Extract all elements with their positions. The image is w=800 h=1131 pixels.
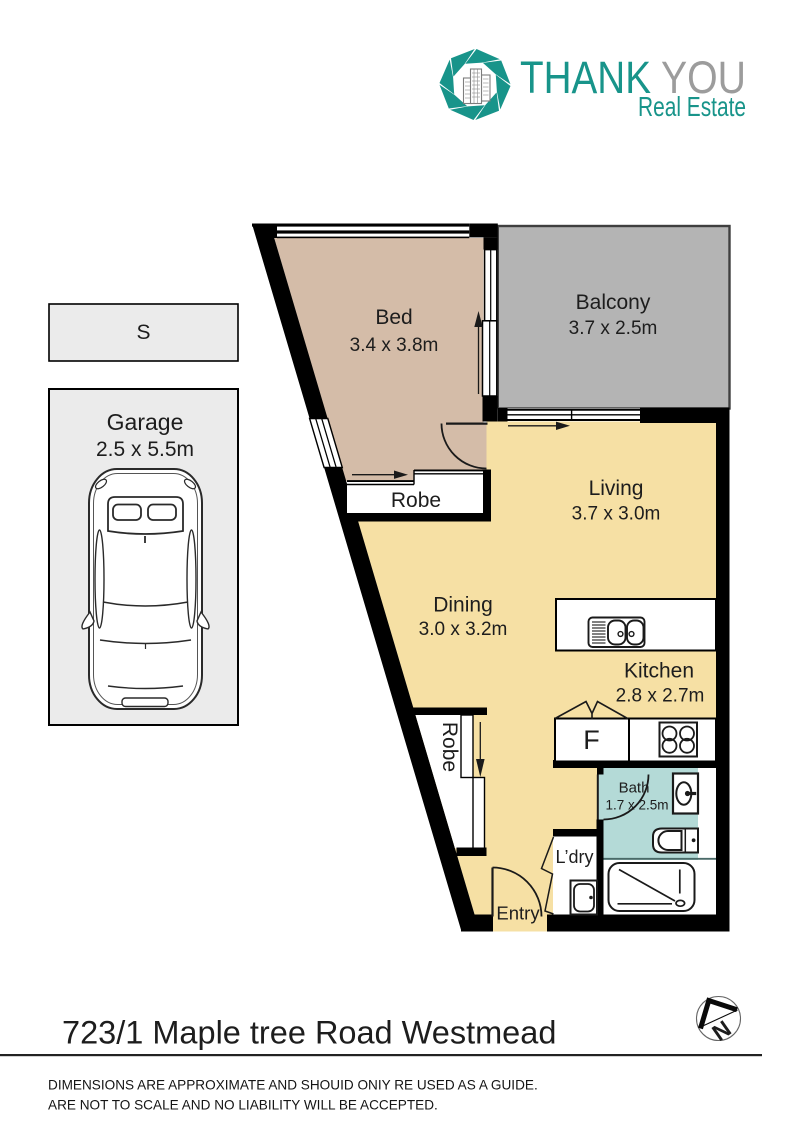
svg-text:Dining: Dining — [433, 594, 493, 617]
svg-text:Entry: Entry — [496, 903, 540, 924]
svg-text:3.0 x 3.2m: 3.0 x 3.2m — [419, 619, 508, 640]
svg-text:Robe: Robe — [438, 722, 461, 772]
svg-text:ARE NOT TO SCALE AND NO LIABIL: ARE NOT TO SCALE AND NO LIABILITY WILL B… — [48, 1098, 438, 1113]
svg-text:S: S — [136, 321, 150, 344]
svg-text:3.7 x 3.0m: 3.7 x 3.0m — [572, 504, 661, 525]
svg-text:Real Estate: Real Estate — [638, 91, 746, 122]
svg-text:723/1 Maple tree Road Westmead: 723/1 Maple tree Road Westmead — [62, 1015, 556, 1051]
svg-text:N: N — [707, 1015, 736, 1046]
svg-text:L’dry: L’dry — [555, 847, 593, 867]
svg-text:DIMENSIONS ARE APPROXIMATE AND: DIMENSIONS ARE APPROXIMATE AND SHOUID ON… — [48, 1078, 538, 1093]
svg-text:1.7 x 2.5m: 1.7 x 2.5m — [605, 798, 668, 813]
svg-text:3.7 x 2.5m: 3.7 x 2.5m — [569, 318, 658, 339]
svg-text:Kitchen: Kitchen — [624, 660, 694, 683]
svg-text:2.8 x 2.7m: 2.8 x 2.7m — [616, 686, 705, 707]
svg-text:2.5 x 5.5m: 2.5 x 5.5m — [96, 438, 194, 461]
svg-text:Garage: Garage — [107, 409, 184, 435]
svg-text:Bath: Bath — [619, 780, 650, 797]
svg-text:Balcony: Balcony — [576, 291, 651, 314]
svg-text:F: F — [583, 725, 600, 755]
svg-text:Living: Living — [589, 477, 644, 500]
svg-text:THANK: THANK — [520, 52, 651, 103]
svg-text:3.4 x 3.8m: 3.4 x 3.8m — [350, 335, 439, 356]
svg-text:Robe: Robe — [391, 489, 441, 512]
svg-text:Bed: Bed — [375, 306, 412, 329]
